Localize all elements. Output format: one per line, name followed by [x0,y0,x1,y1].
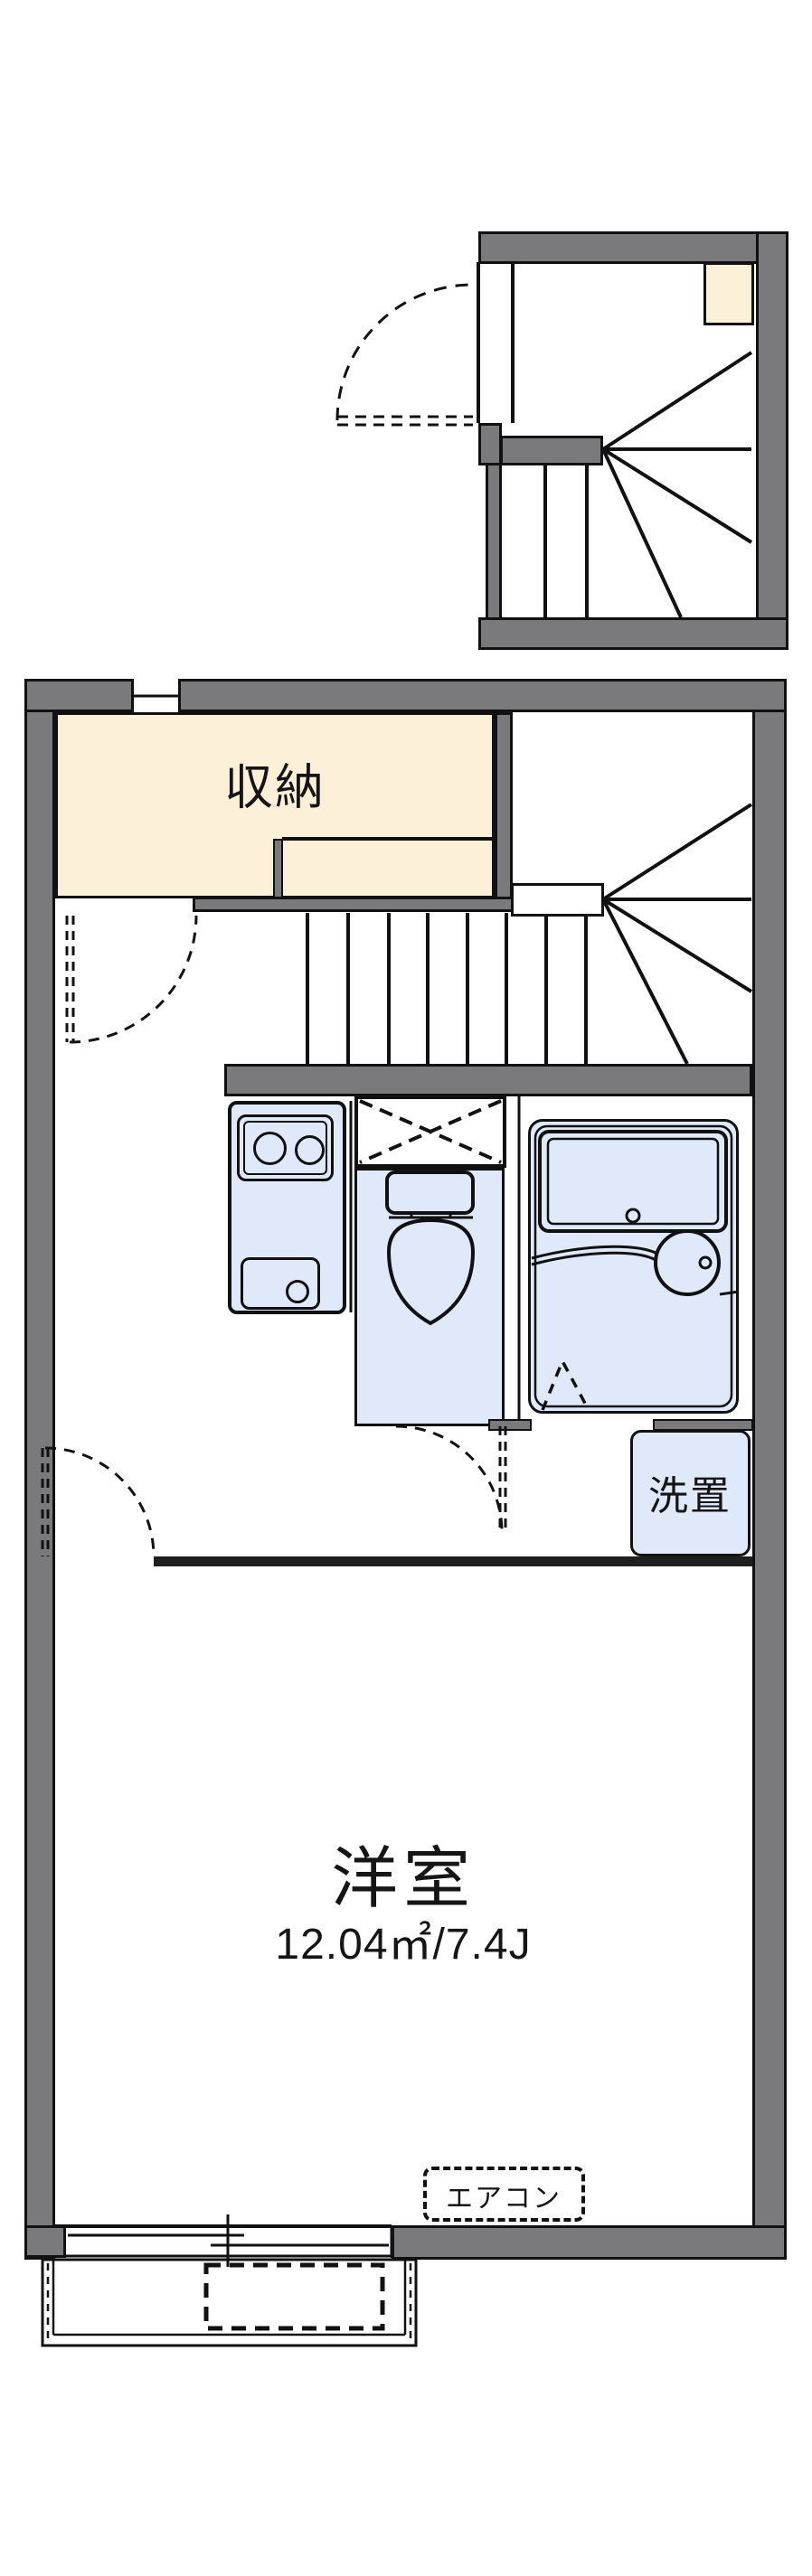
stair-landing-bar [511,883,604,917]
stove-burner-right [295,1135,325,1165]
fragment-wall-right [756,231,788,650]
fragment-stair-treads [545,353,751,617]
closet-door-swing-icon [67,916,196,1042]
main-wall-bottom [392,2225,787,2260]
fragment-wall-bottom [478,617,788,650]
kitchen-sink [241,1257,320,1310]
main-wall-left [24,710,55,2260]
floor-plan-canvas: 収納 洗置 洋室 12.04㎡/7.4J エアコン [0,0,812,2576]
fragment-shelf [703,262,754,325]
fragment-door-jambs [478,262,513,423]
main-room-size-label: 12.04㎡/7.4J [275,1908,531,1971]
shelf-cross-box [354,1095,506,1168]
main-wall-left-cap [24,2225,66,2258]
bottom-window-icon [55,2214,392,2267]
fragment-landing-bar [500,436,603,465]
aircon-label: エアコン [446,2176,562,2215]
toilet-door-swing-icon [396,1426,505,1532]
main-wall-top-left [24,679,134,712]
fragment-wall-top [478,231,788,264]
washer-label: 洗置 [648,1463,732,1521]
closet-under-stair-stub [273,839,283,898]
closet-label: 収納 [224,747,326,819]
bathroom-pan [528,1119,739,1414]
balcony-outline [42,2260,416,2346]
main-room-label: 洋室 [331,1825,476,1922]
stove-burner-left [253,1132,287,1165]
fragment-wall-left-lower [486,463,502,620]
mid-thick-wall [224,1064,752,1096]
toilet-room [354,1168,505,1426]
closet-wall-right [495,712,513,912]
fragment-wall-stub [478,423,502,465]
main-wall-top-right [178,679,787,712]
room-door-swing-icon [42,1448,154,1556]
main-wall-right [752,710,787,2260]
room-divider-wall [154,1556,752,1566]
sink-drain [286,1280,309,1303]
entry-door-swing-icon [337,285,473,425]
closet-wall-bottom [193,897,515,912]
bath-bottom-wall-left-stub [488,1419,532,1431]
